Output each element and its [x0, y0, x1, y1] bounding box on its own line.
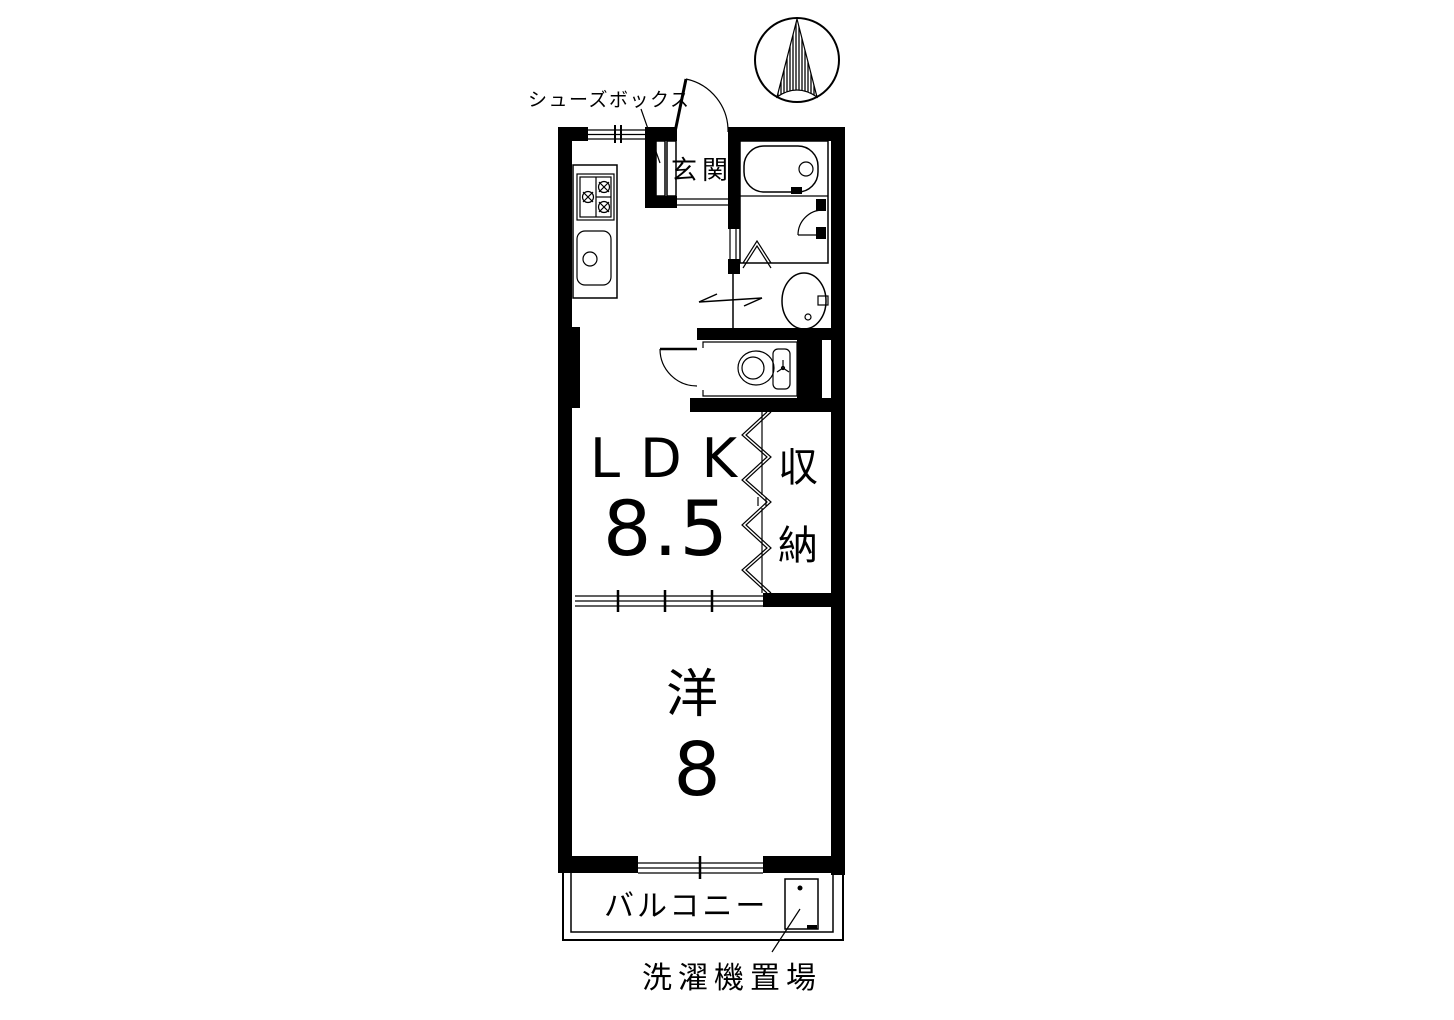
western-room-label: 洋: [666, 665, 718, 725]
closet-label-char2: 納: [778, 523, 818, 569]
floor-plan-page: シューズボックス 玄関 LDK 8.5 収 納 洋 8 バルコニー 洗濯機置場: [0, 0, 1454, 1020]
entrance-label: 玄関: [671, 156, 733, 186]
washing-machine-area-label: 洗濯機置場: [642, 961, 822, 996]
ldk-size-label: 8.5: [603, 484, 730, 573]
closet-label-char1: 収: [778, 445, 818, 491]
western-room-size-label: 8: [673, 727, 720, 813]
ldk-label: LDK: [590, 427, 757, 490]
balcony-label: バルコニー: [604, 889, 768, 924]
floor-plan-canvas: シューズボックス 玄関 LDK 8.5 収 納 洋 8 バルコニー 洗濯機置場: [0, 0, 1454, 1020]
shoe-box-label: シューズボックス: [528, 89, 690, 111]
